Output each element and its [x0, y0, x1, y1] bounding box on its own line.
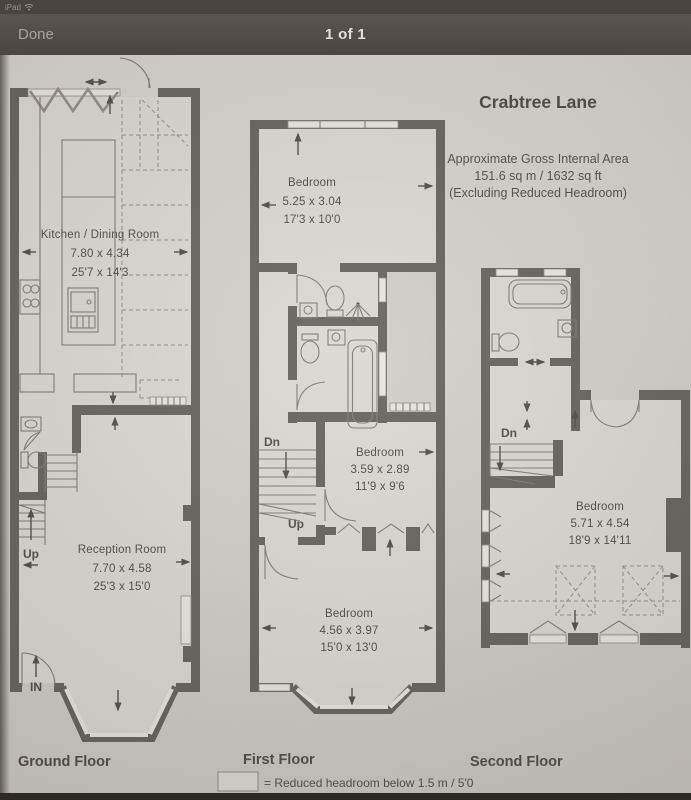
- area-line2: 151.6 sq m / 1632 sq ft: [474, 169, 602, 183]
- bedroom-front-imperial: 17'3 x 10'0: [283, 214, 340, 226]
- first-up-label: Up: [288, 517, 304, 531]
- second-bedroom-name: Bedroom: [576, 501, 624, 513]
- ipad-screen: iPad Done 1 of 1 Crabtree Lane Approxima…: [0, 0, 691, 800]
- bedroom-back-metric: 4.56 x 3.97: [319, 625, 378, 637]
- first-floor-label: First Floor: [243, 752, 315, 768]
- device-label: iPad: [5, 3, 21, 12]
- ground-in-label: IN: [30, 680, 42, 694]
- first-floor-plan: Bedroom 5.25 x 3.04 17'3 x 10'0: [243, 120, 445, 768]
- bedroom-back-imperial: 15'0 x 13'0: [320, 642, 377, 654]
- floorplan-drawing: Crabtree Lane Approximate Gross Internal…: [0, 55, 691, 800]
- ground-floor-label: Ground Floor: [18, 754, 111, 770]
- bedroom-middle-metric: 3.59 x 2.89: [350, 464, 409, 476]
- kitchen-imperial: 25'7 x 14'3: [71, 267, 128, 279]
- reception-metric: 7.70 x 4.58: [92, 563, 151, 575]
- reception-name: Reception Room: [78, 544, 166, 556]
- area-line3: (Excluding Reduced Headroom): [449, 186, 627, 200]
- legend: = Reduced headroom below 1.5 m / 5'0: [218, 772, 474, 791]
- second-floor-plan: Dn Bedroom 5.71 x 4.54 18'9 x 14'11: [470, 268, 690, 770]
- bedroom-front-metric: 5.25 x 3.04: [282, 196, 342, 208]
- bedroom-middle-name: Bedroom: [356, 447, 404, 459]
- radiator: [150, 397, 186, 405]
- done-button[interactable]: Done: [18, 26, 54, 43]
- ground-up-label: Up: [23, 547, 39, 561]
- legend-text: = Reduced headroom below 1.5 m / 5'0: [264, 776, 474, 790]
- second-bedroom-metric: 5.71 x 4.54: [570, 518, 630, 530]
- status-bar: iPad: [0, 0, 691, 14]
- first-dn-label: Dn: [264, 435, 280, 449]
- radiator: [390, 403, 430, 411]
- kitchen-name: Kitchen / Dining Room: [41, 229, 160, 241]
- wifi-icon: [24, 3, 34, 11]
- plan-title: Crabtree Lane: [479, 92, 597, 112]
- lightwell: [387, 272, 436, 412]
- floorplan-document[interactable]: Crabtree Lane Approximate Gross Internal…: [0, 55, 691, 800]
- bedroom-back-name: Bedroom: [325, 608, 373, 620]
- area-line1: Approximate Gross Internal Area: [447, 152, 628, 166]
- second-dn-label: Dn: [501, 426, 517, 440]
- reception-imperial: 25'3 x 15'0: [93, 581, 150, 593]
- fireplace: [181, 596, 191, 644]
- title-block: Crabtree Lane Approximate Gross Internal…: [447, 92, 628, 200]
- bedroom-middle-imperial: 11'9 x 9'6: [355, 481, 405, 493]
- viewer-toolbar: Done 1 of 1: [0, 14, 691, 56]
- ground-floor-plan: Up Kitchen / Dining Room 7.80 x 4.34 25'…: [10, 58, 200, 770]
- bedroom-front-name: Bedroom: [288, 177, 336, 189]
- second-bedroom-imperial: 18'9 x 14'11: [569, 535, 632, 547]
- second-floor-label: Second Floor: [470, 754, 563, 770]
- kitchen-metric: 7.80 x 4.34: [70, 248, 130, 260]
- page-indicator: 1 of 1: [325, 26, 366, 43]
- legend-swatch: [218, 772, 258, 791]
